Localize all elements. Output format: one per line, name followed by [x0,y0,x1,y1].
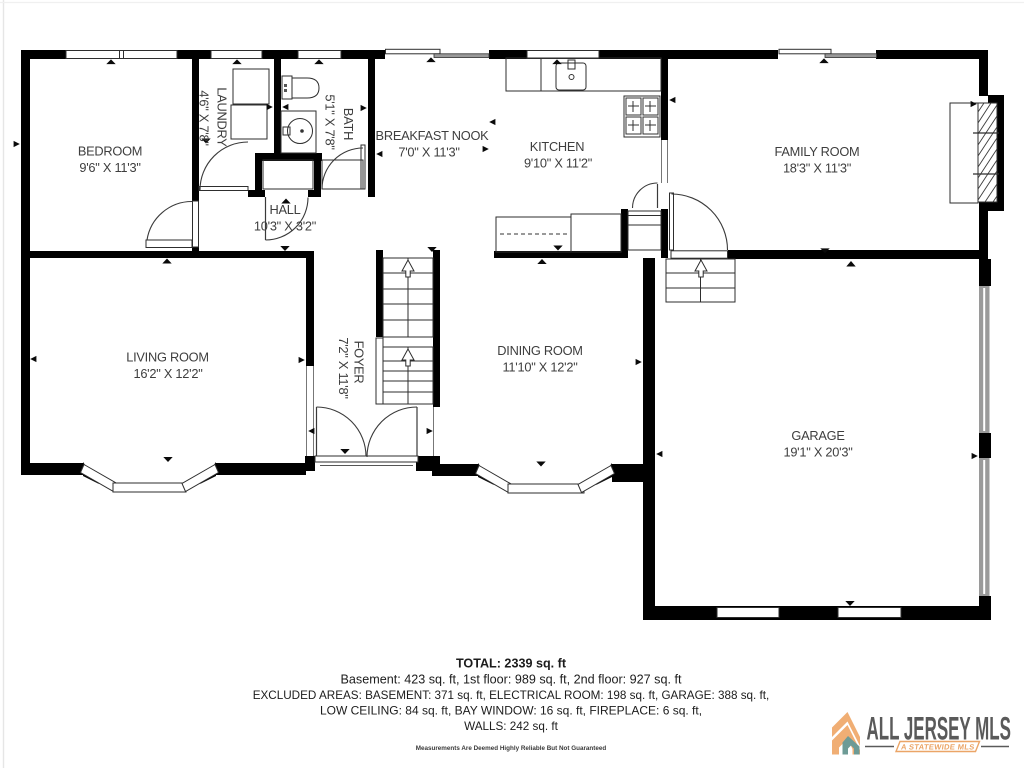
svg-text:7'2" X 11'8": 7'2" X 11'8" [336,337,351,398]
svg-text:LAUNDRY: LAUNDRY [215,87,230,147]
svg-text:9'10" X 11'2": 9'10" X 11'2" [524,155,592,170]
svg-text:FAMILY ROOM: FAMILY ROOM [775,144,860,159]
svg-text:GARAGE: GARAGE [791,428,844,443]
svg-text:BATH: BATH [341,108,356,140]
svg-text:5'1" X 7'8": 5'1" X 7'8" [323,94,338,149]
svg-text:EXCLUDED AREAS: BASEMENT: 371: EXCLUDED AREAS: BASEMENT: 371 sq. ft, EL… [253,689,770,702]
svg-text:9'6" X 11'3": 9'6" X 11'3" [79,160,140,175]
svg-text:KITCHEN: KITCHEN [530,139,584,154]
svg-text:4'6" X 7'8": 4'6" X 7'8" [197,90,212,145]
svg-text:A STATEWIDE MLS: A STATEWIDE MLS [900,743,975,752]
svg-text:DINING ROOM: DINING ROOM [497,343,582,358]
svg-text:11'10" X 12'2": 11'10" X 12'2" [503,359,578,374]
svg-text:BREAKFAST NOOK: BREAKFAST NOOK [376,128,490,143]
svg-text:FOYER: FOYER [352,341,367,384]
svg-text:LOW CEILING: 84 sq. ft, BAY WI: LOW CEILING: 84 sq. ft, BAY WINDOW: 16 s… [320,703,702,717]
svg-text:10'3" X 3'2": 10'3" X 3'2" [254,218,316,233]
svg-text:16'2" X 12'2": 16'2" X 12'2" [133,366,202,381]
svg-text:Basement: 423 sq. ft, 1st floo: Basement: 423 sq. ft, 1st floor: 989 sq.… [341,672,682,686]
svg-text:18'3" X 11'3": 18'3" X 11'3" [783,160,851,175]
svg-text:TOTAL: 2339 sq. ft: TOTAL: 2339 sq. ft [456,656,567,670]
svg-text:7'0" X 11'3": 7'0" X 11'3" [398,144,459,159]
svg-text:19'1" X 20'3": 19'1" X 20'3" [783,444,852,459]
svg-text:HALL: HALL [269,202,300,217]
svg-text:BEDROOM: BEDROOM [78,143,142,158]
svg-text:Measurements Are Deemed Highly: Measurements Are Deemed Highly Reliable … [416,745,607,752]
svg-text:WALLS: 242 sq. ft: WALLS: 242 sq. ft [464,720,559,733]
svg-text:LIVING ROOM: LIVING ROOM [126,349,209,364]
